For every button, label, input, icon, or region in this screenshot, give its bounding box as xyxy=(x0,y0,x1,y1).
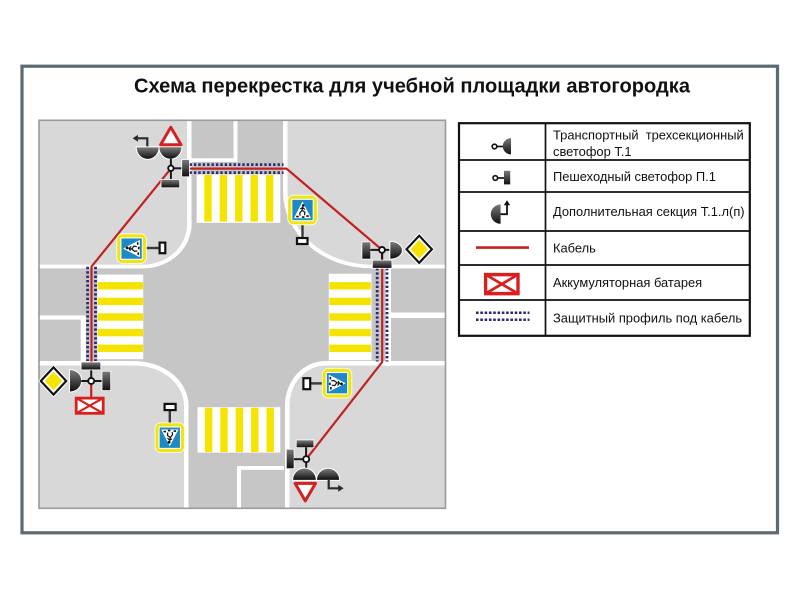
svg-text:Пешеходный светофор П.1: Пешеходный светофор П.1 xyxy=(553,169,716,184)
svg-text:Кабель: Кабель xyxy=(553,241,596,256)
svg-text:Дополнительная секция Т.1.л(п): Дополнительная секция Т.1.л(п) xyxy=(553,204,745,219)
svg-text:Защитный профиль под кабель: Защитный профиль под кабель xyxy=(553,311,742,326)
svg-text:светофор Т.1: светофор Т.1 xyxy=(553,144,632,159)
svg-text:Аккумуляторная батарея: Аккумуляторная батарея xyxy=(553,275,702,290)
svg-text:Схема перекрестка для учебной: Схема перекрестка для учебной площадки а… xyxy=(134,76,691,98)
svg-text:Транспортный трехсекционный: Транспортный трехсекционный xyxy=(553,128,744,143)
